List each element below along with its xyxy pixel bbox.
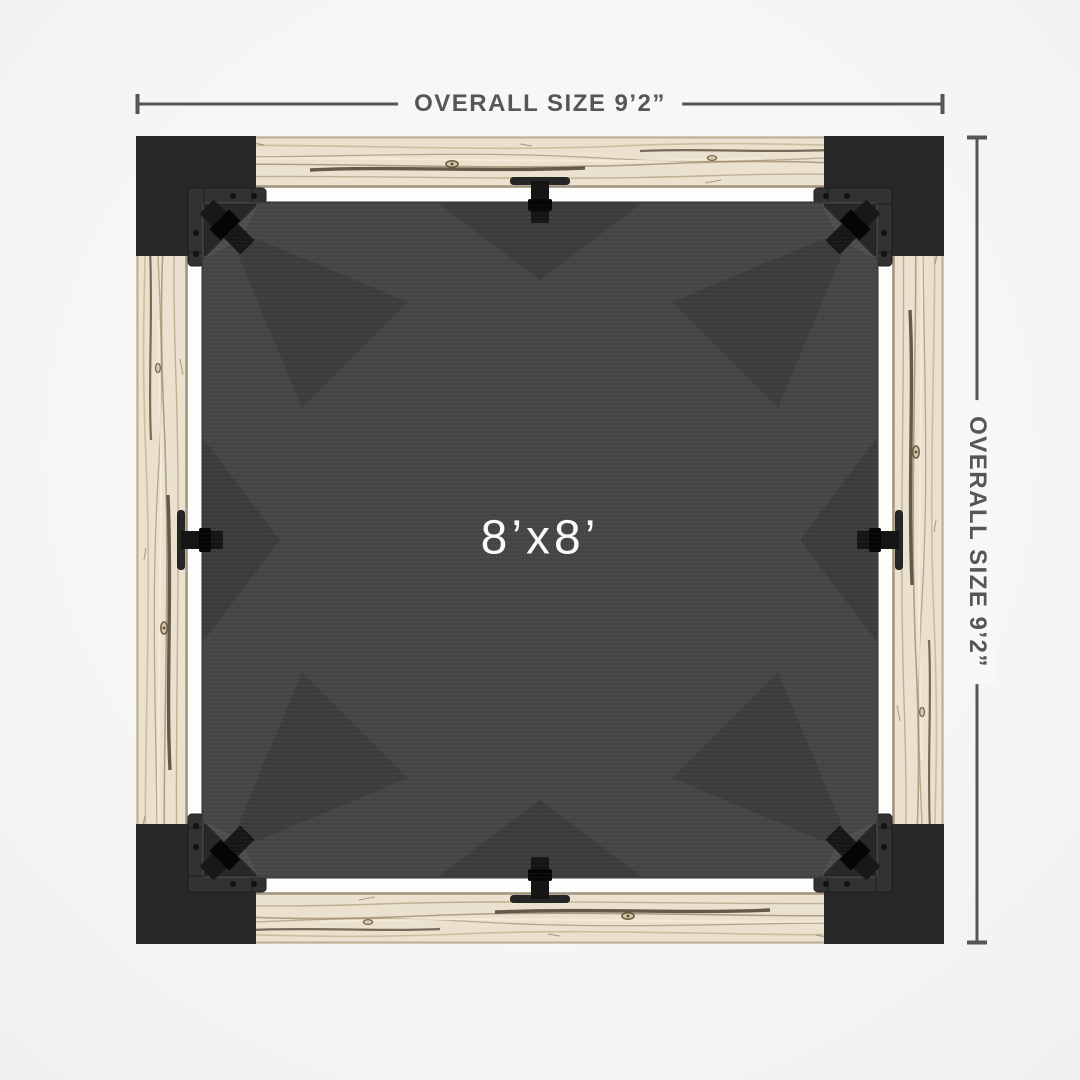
pergola-dimension-diagram: 8’x8’ OVERALL SIZE 9’2” OVERALL SIZE 9’2… xyxy=(0,0,1080,1080)
overall-size-top-label: OVERALL SIZE 9’2” xyxy=(398,86,682,122)
canopy-size-label: 8’x8’ xyxy=(481,511,600,566)
overall-size-right-label: OVERALL SIZE 9’2” xyxy=(959,400,995,684)
